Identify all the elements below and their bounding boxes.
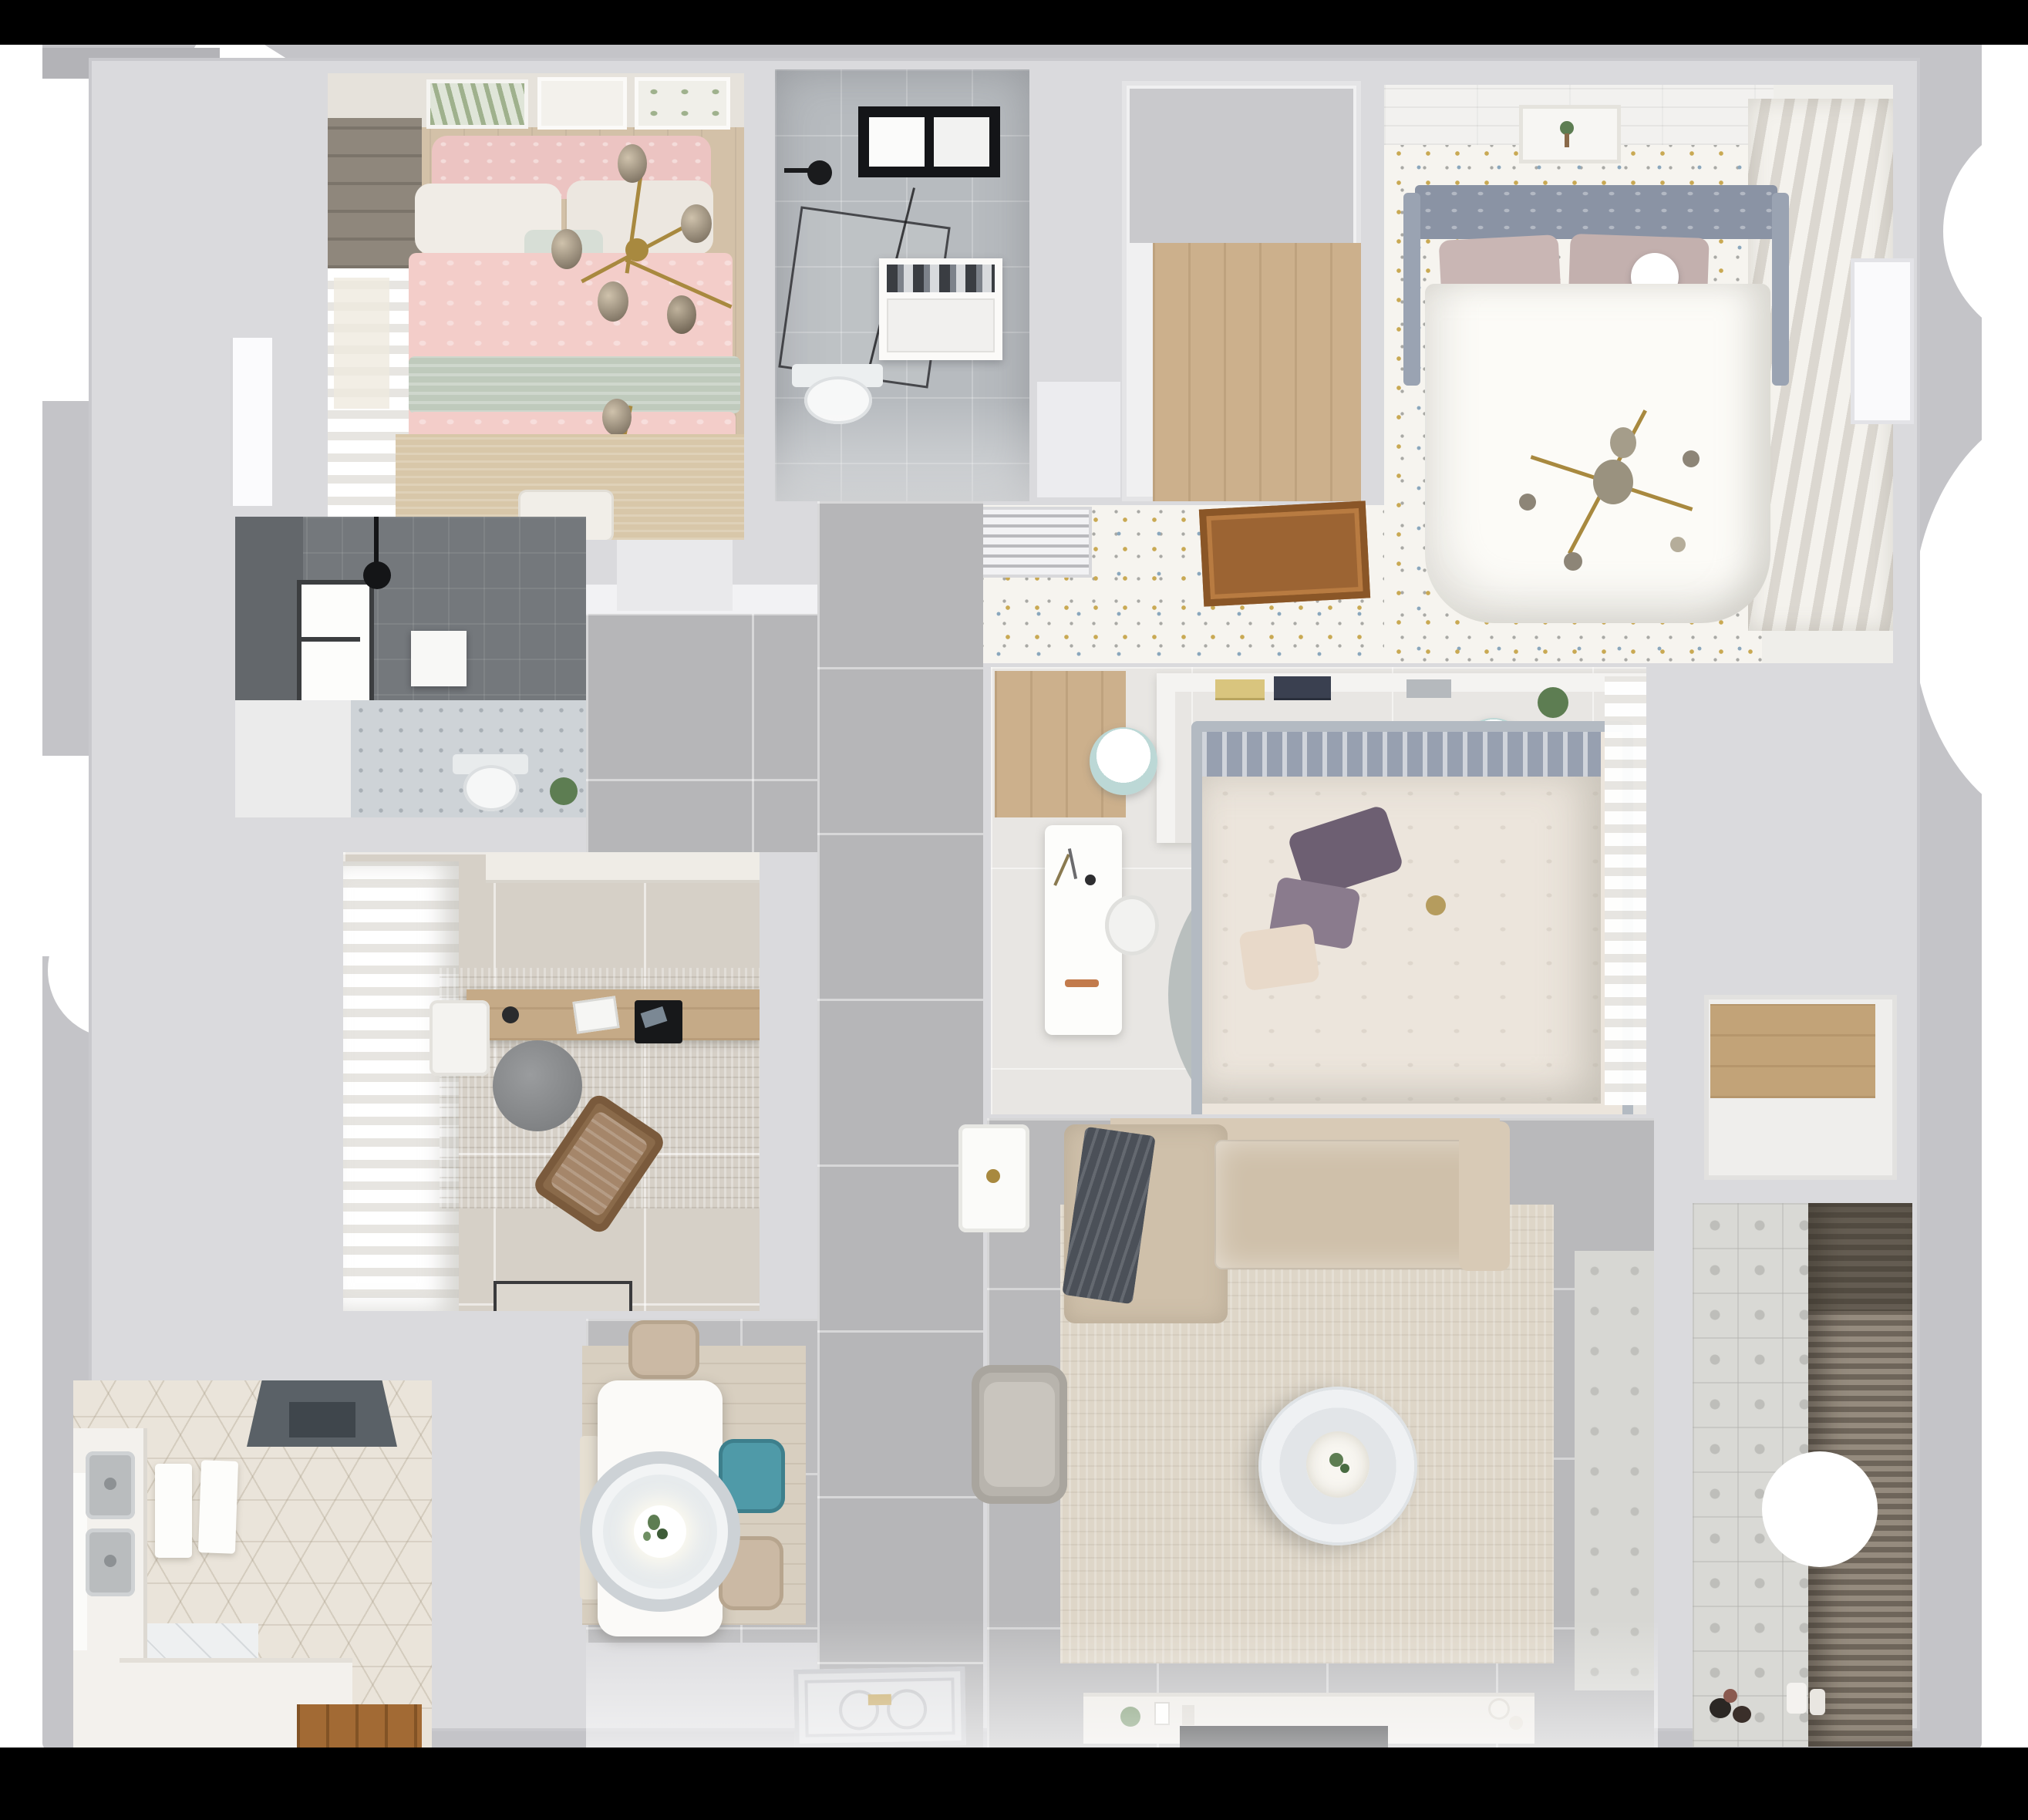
room-master-bedroom bbox=[1384, 85, 1893, 663]
balcony-bottle-1 bbox=[1787, 1683, 1807, 1714]
vanity bbox=[879, 258, 1002, 360]
entry-door-mat bbox=[793, 1667, 966, 1748]
room-kitchen bbox=[73, 1380, 432, 1751]
storage-wood-shelf bbox=[1710, 1004, 1875, 1098]
bath2-plant bbox=[550, 777, 578, 805]
lit-floor bbox=[235, 700, 351, 817]
room-living bbox=[987, 1118, 1654, 1751]
pouf-left bbox=[1090, 727, 1157, 795]
cutting-board-2 bbox=[198, 1460, 238, 1554]
monitor bbox=[635, 1000, 682, 1043]
books-stack-3 bbox=[1406, 679, 1451, 698]
towel-panel bbox=[411, 631, 467, 686]
room-cloakroom bbox=[1122, 81, 1361, 501]
cutting-board-1 bbox=[155, 1464, 192, 1558]
window-glow bbox=[334, 278, 389, 409]
door-opening-bath bbox=[1037, 382, 1120, 497]
shower-rod bbox=[374, 517, 379, 566]
black-band-bottom bbox=[0, 1748, 2028, 1820]
cloak-upper-floor bbox=[1130, 89, 1353, 243]
chair-beige-bottom bbox=[719, 1536, 783, 1610]
coffee-table-outer bbox=[1258, 1387, 1417, 1545]
artifact-circle-balcony bbox=[1762, 1451, 1878, 1567]
wood-ceiling-hatch bbox=[1199, 501, 1370, 606]
canopy-headboard bbox=[1202, 732, 1601, 777]
pendant-lamp bbox=[592, 1464, 728, 1599]
range-hood bbox=[247, 1380, 397, 1447]
round-gray-chair bbox=[493, 1040, 582, 1131]
white-door-left-wall bbox=[230, 338, 272, 506]
room-corridor bbox=[964, 505, 1384, 663]
gold-accent bbox=[1426, 895, 1446, 915]
floor-plan-render bbox=[0, 0, 2028, 1820]
study-door-mat bbox=[494, 1281, 632, 1311]
room-bathroom-main bbox=[775, 69, 1029, 501]
center-bed bbox=[1191, 721, 1633, 1114]
bath-floor-glow bbox=[775, 401, 1029, 501]
books-stack-2 bbox=[1274, 676, 1331, 698]
sofa-armrest bbox=[1459, 1121, 1510, 1271]
coffee-mug bbox=[502, 1006, 519, 1023]
room-bathroom-second bbox=[235, 517, 586, 817]
balcony-bottle-2 bbox=[1810, 1689, 1825, 1715]
room-balcony bbox=[1693, 1203, 1912, 1747]
dark-wall-left bbox=[235, 517, 303, 700]
toilet-2 bbox=[453, 754, 528, 814]
room-study bbox=[343, 852, 760, 1311]
gray-armchair bbox=[972, 1365, 1067, 1504]
master-bed bbox=[1403, 185, 1781, 648]
art-frame-plant bbox=[1519, 105, 1621, 163]
bath2-window bbox=[297, 580, 374, 709]
balcony-toy-2 bbox=[1733, 1706, 1751, 1723]
branch-chandelier-upper bbox=[551, 158, 721, 359]
room-bedroom-center bbox=[991, 667, 1646, 1114]
tufted-headboard bbox=[1415, 185, 1777, 239]
room-dining bbox=[586, 1319, 817, 1643]
center-desk-chair bbox=[1105, 895, 1159, 956]
study-shelf bbox=[486, 852, 760, 880]
side-table-white bbox=[958, 1124, 1029, 1232]
chair-beige-top bbox=[628, 1320, 699, 1379]
art-frame-3 bbox=[635, 77, 730, 130]
shelf-plant bbox=[1538, 687, 1568, 718]
sputnik-chandelier bbox=[1519, 401, 1704, 571]
books-stack-1 bbox=[1215, 679, 1265, 698]
balcony-threshold bbox=[1575, 1251, 1654, 1690]
blinds-dark-top bbox=[1808, 1203, 1912, 1311]
shower-head-disc bbox=[807, 160, 832, 185]
bed-rail-right bbox=[1772, 193, 1789, 386]
cloak-wood-floor bbox=[1153, 243, 1361, 501]
hallway-corridor bbox=[817, 501, 983, 1751]
artifact-notch-left bbox=[31, 756, 89, 956]
skylight-window bbox=[858, 106, 1000, 177]
laptop bbox=[572, 996, 619, 1033]
bed-rail-left bbox=[1403, 193, 1420, 386]
right-edge-door bbox=[1851, 258, 1914, 424]
chair-teal bbox=[719, 1439, 785, 1513]
desk-chair-white bbox=[430, 1000, 490, 1076]
roman-blind bbox=[328, 118, 422, 268]
kitchen-door bbox=[297, 1704, 422, 1751]
sink-upper bbox=[86, 1451, 135, 1519]
balcony-toy-3 bbox=[1723, 1689, 1737, 1703]
room-bedroom-pink bbox=[328, 73, 744, 540]
center-curtain bbox=[1605, 676, 1646, 1105]
shower-head-2 bbox=[363, 561, 391, 589]
pink-room-door-gap bbox=[617, 540, 733, 611]
art-frame-botanical bbox=[426, 79, 528, 129]
sink-lower bbox=[86, 1528, 135, 1596]
art-frame-2 bbox=[537, 77, 627, 130]
ac-vent-grille bbox=[975, 507, 1092, 578]
pillow-cream bbox=[1238, 923, 1320, 992]
room-storage bbox=[1704, 995, 1897, 1180]
hallway-upper-arm bbox=[586, 613, 817, 852]
black-band-top bbox=[0, 0, 2028, 45]
